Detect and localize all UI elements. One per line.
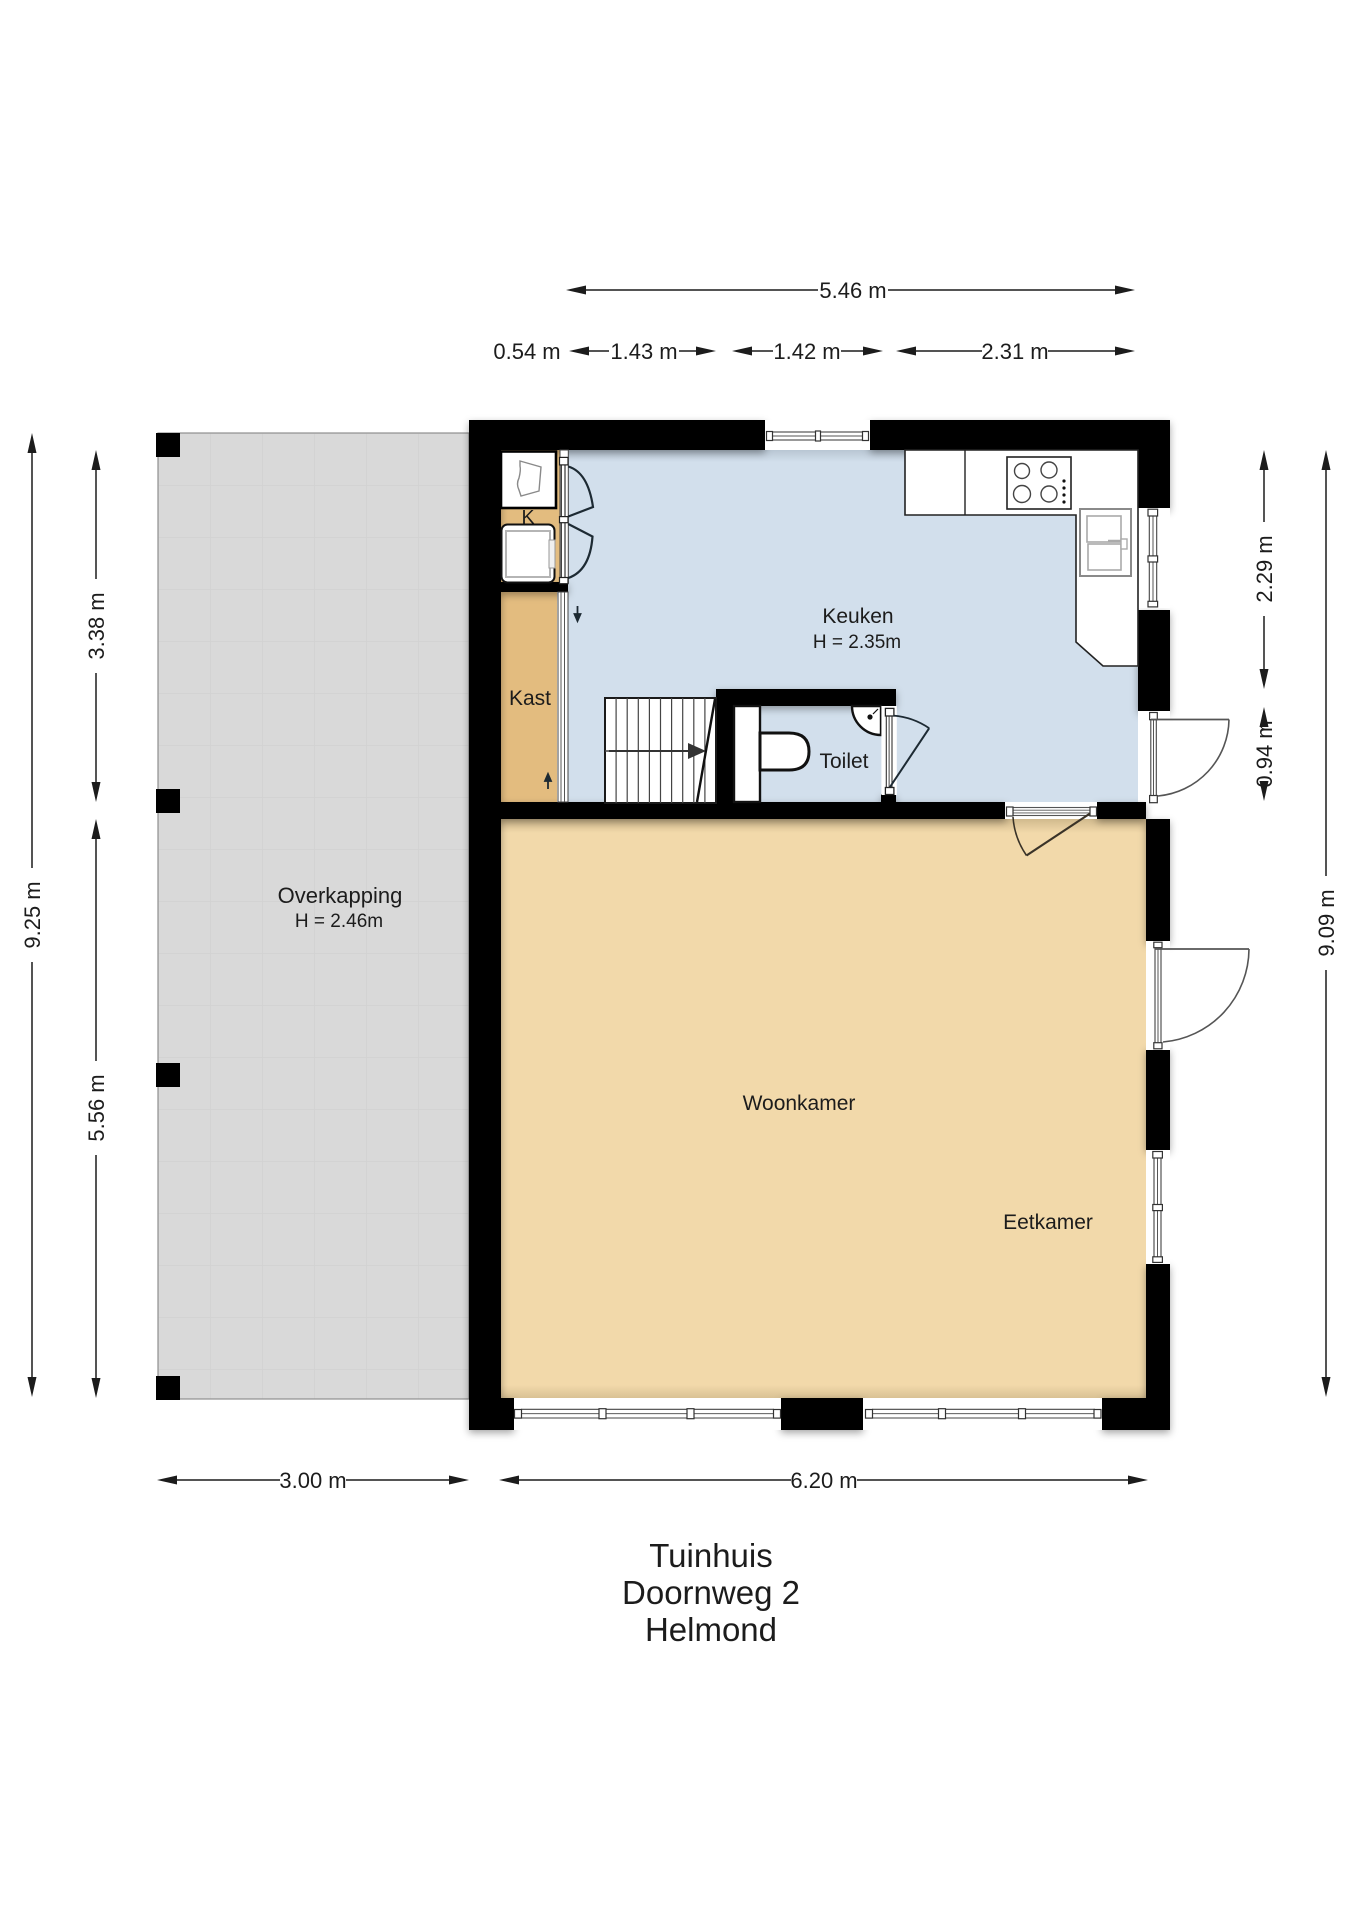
svg-text:Woonkamer: Woonkamer (743, 1092, 856, 1115)
svg-text:9.25 m: 9.25 m (20, 881, 45, 948)
svg-text:3.38 m: 3.38 m (84, 592, 109, 659)
svg-text:Toilet: Toilet (819, 750, 868, 773)
svg-text:H = 2.46m: H = 2.46m (295, 911, 383, 932)
svg-text:2.31 m: 2.31 m (981, 339, 1048, 364)
svg-text:Kast: Kast (509, 687, 551, 710)
svg-text:5.46 m: 5.46 m (819, 278, 886, 303)
svg-text:9.09 m: 9.09 m (1314, 889, 1339, 956)
svg-text:1.43 m: 1.43 m (610, 339, 677, 364)
svg-text:1.42 m: 1.42 m (773, 339, 840, 364)
svg-text:K: K (521, 507, 534, 529)
svg-text:Helmond: Helmond (645, 1611, 777, 1648)
svg-text:Keuken: Keuken (822, 605, 893, 628)
svg-text:Tuinhuis: Tuinhuis (649, 1537, 773, 1574)
svg-text:5.56 m: 5.56 m (84, 1074, 109, 1141)
svg-text:0.94 m: 0.94 m (1252, 720, 1277, 787)
svg-text:6.20 m: 6.20 m (790, 1468, 857, 1493)
svg-text:Doornweg 2: Doornweg 2 (622, 1574, 800, 1611)
svg-text:Eetkamer: Eetkamer (1003, 1211, 1093, 1234)
svg-text:2.29 m: 2.29 m (1252, 535, 1277, 602)
svg-text:0.54 m: 0.54 m (493, 339, 560, 364)
svg-text:3.00 m: 3.00 m (279, 1468, 346, 1493)
svg-text:Overkapping: Overkapping (278, 883, 403, 908)
svg-text:H = 2.35m: H = 2.35m (813, 632, 901, 653)
